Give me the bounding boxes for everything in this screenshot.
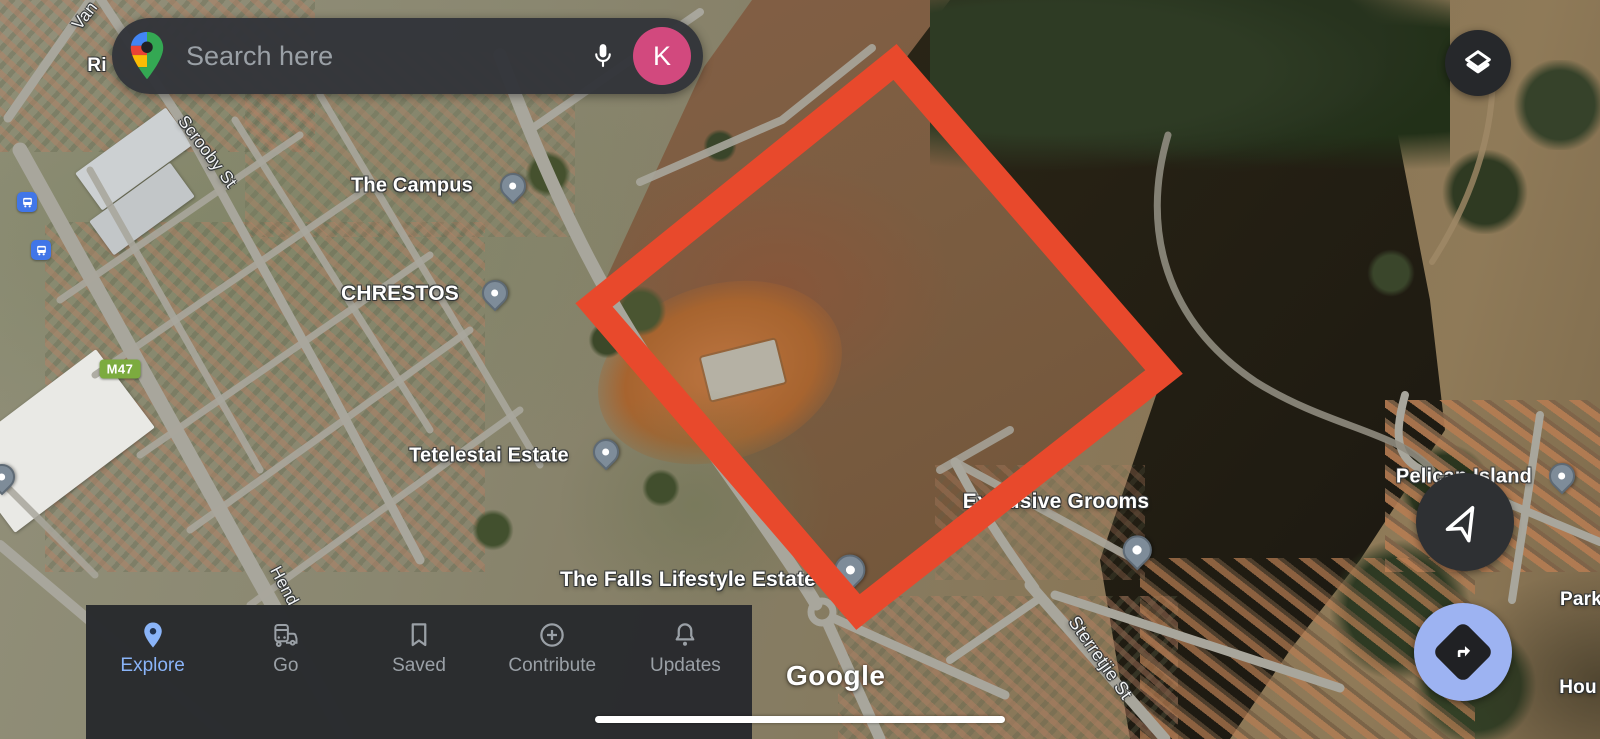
bell-icon bbox=[670, 620, 700, 650]
plus-circle-icon bbox=[537, 620, 567, 650]
directions-arrow-icon bbox=[1450, 639, 1476, 665]
search-input[interactable] bbox=[184, 40, 581, 73]
directions-diamond bbox=[1432, 621, 1494, 683]
directions-button[interactable] bbox=[1414, 603, 1512, 701]
mic-icon bbox=[588, 41, 618, 71]
home-indicator[interactable] bbox=[595, 716, 1005, 723]
search-bar: K bbox=[112, 18, 703, 94]
nav-label: Updates bbox=[650, 655, 721, 677]
nav-label: Contribute bbox=[508, 655, 596, 677]
locate-button[interactable] bbox=[1416, 473, 1514, 571]
account-avatar[interactable]: K bbox=[633, 27, 691, 85]
nav-label: Go bbox=[273, 655, 298, 677]
layers-button[interactable] bbox=[1445, 30, 1511, 96]
nav-item-go[interactable]: Go bbox=[219, 605, 352, 739]
highlight-square-outline bbox=[594, 62, 1164, 612]
layers-icon bbox=[1461, 46, 1495, 80]
nav-item-explore[interactable]: Explore bbox=[86, 605, 219, 739]
nav-label: Saved bbox=[392, 655, 446, 677]
transit-icon bbox=[271, 620, 301, 650]
nav-label: Explore bbox=[120, 655, 184, 677]
google-watermark: Google bbox=[786, 660, 885, 692]
navigation-arrow-icon bbox=[1435, 492, 1495, 552]
bookmark-icon bbox=[404, 620, 434, 650]
location-pin-icon bbox=[138, 620, 168, 650]
mic-button[interactable] bbox=[581, 34, 625, 78]
nav-item-saved[interactable]: Saved bbox=[352, 605, 485, 739]
google-maps-app: The CampusCHRESTOSTetelestai EstateThe F… bbox=[0, 0, 1600, 739]
google-maps-logo-icon bbox=[128, 31, 166, 81]
